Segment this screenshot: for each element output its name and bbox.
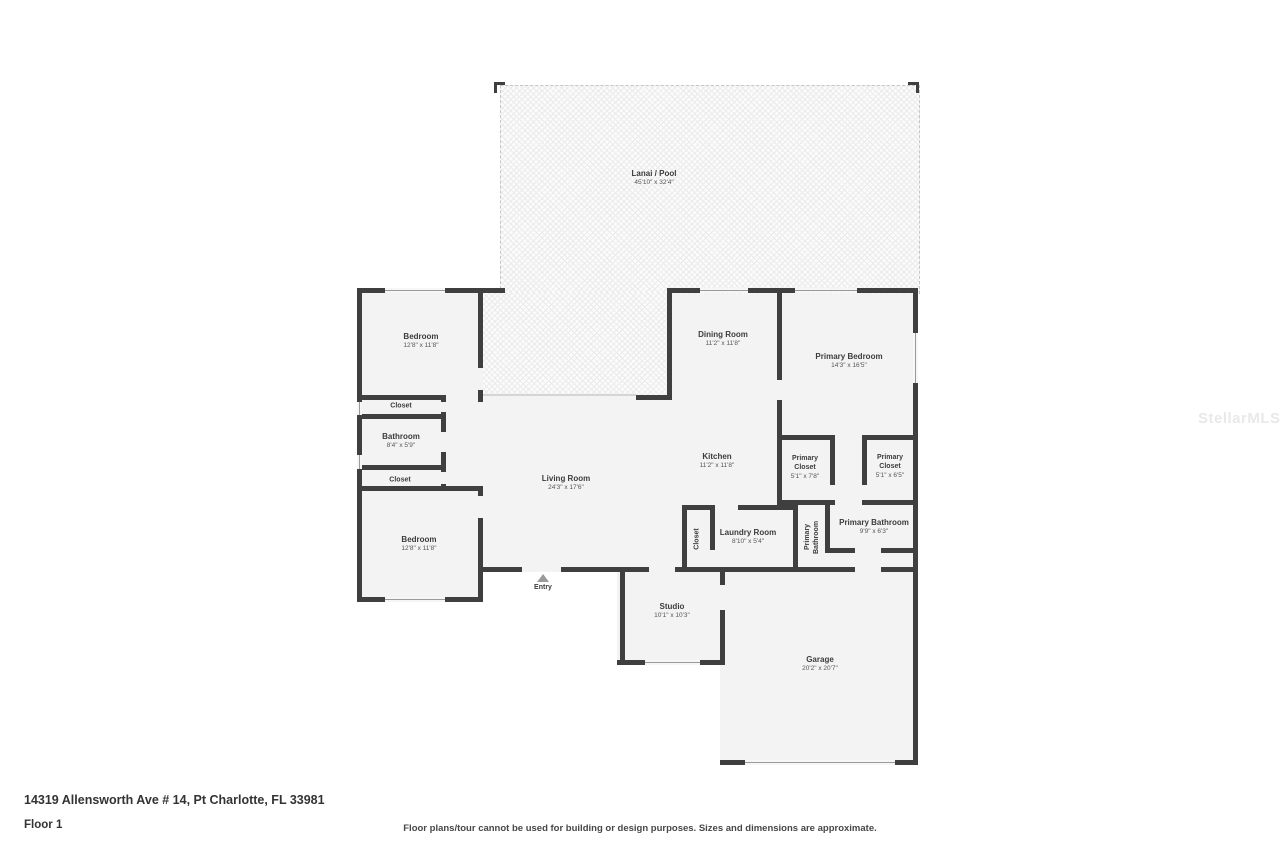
- wall: [357, 414, 446, 419]
- disclaimer-text: Floor plans/tour cannot be used for buil…: [0, 823, 1280, 834]
- wall: [777, 435, 835, 440]
- wall: [625, 567, 649, 572]
- room-name: Bathroom: [382, 432, 420, 442]
- window-marker: [385, 597, 445, 602]
- room-dims: 24'3" x 17'6": [542, 484, 590, 492]
- room-dims: 20'2" x 20'7": [802, 665, 838, 673]
- wall: [675, 567, 855, 572]
- room-dims: 14'3" x 16'5": [815, 362, 882, 370]
- room-name: Bedroom: [401, 535, 436, 545]
- room-name: Primary Bedroom: [815, 352, 882, 362]
- wall: [478, 486, 483, 496]
- room-label-studio: Studio 10'1" x 10'3": [654, 602, 690, 620]
- window-marker: [385, 288, 445, 293]
- wall: [620, 567, 625, 665]
- window-marker: [645, 660, 700, 665]
- window-marker: [795, 288, 857, 293]
- entry-arrow-icon: [537, 574, 549, 582]
- room-dims: 45'10" x 32'4": [632, 179, 677, 187]
- room-label-lanai-pool: Lanai / Pool 45'10" x 32'4": [632, 169, 677, 187]
- lanai-extension-area: [483, 293, 672, 395]
- room-name: Living Room: [542, 474, 590, 484]
- wall: [667, 288, 672, 400]
- room-name: Kitchen: [700, 452, 735, 462]
- wall: [710, 505, 715, 550]
- room-name: Laundry Room: [720, 528, 776, 538]
- room-dims: 9'9" x 6'3": [839, 528, 909, 536]
- wall: [441, 484, 446, 491]
- room-label-closet-2: Closet: [389, 477, 410, 486]
- wall: [478, 288, 483, 368]
- room-name: Closet: [389, 477, 410, 486]
- lanai-corner-tick: [916, 82, 919, 93]
- room-dims: 12'8" x 11'8": [401, 545, 436, 553]
- wall: [913, 288, 918, 570]
- room-dims: 11'2" x 11'8": [700, 462, 735, 470]
- wall: [862, 435, 918, 440]
- room-name: Bedroom: [403, 332, 438, 342]
- room-dims: 10'1" x 10'3": [654, 612, 690, 620]
- wall: [825, 505, 830, 550]
- room-label-living-room: Living Room 24'3" x 17'6": [542, 474, 590, 492]
- room-dims: 11'2" x 11'8": [698, 340, 748, 348]
- property-address: 14319 Allensworth Ave # 14, Pt Charlotte…: [24, 793, 325, 807]
- wall: [441, 395, 446, 402]
- room-label-closet-1: Closet: [390, 403, 411, 412]
- entry-marker: Entry: [534, 574, 552, 591]
- room-label-primary-bathroom: Primary Bathroom 9'9" x 6'3": [839, 518, 909, 536]
- wall: [357, 486, 483, 491]
- room-dims: 5'1" x 6'5": [868, 472, 912, 480]
- room-name: Garage: [802, 655, 838, 665]
- room-name: Studio: [654, 602, 690, 612]
- room-label-kitchen: Kitchen 11'2" x 11'8": [700, 452, 735, 470]
- lanai-corner-tick: [494, 82, 497, 93]
- room-label-primary-bathroom-vertical: Primary Bathroom: [803, 510, 821, 564]
- watermark: StellarMLS: [1198, 410, 1280, 427]
- room-dims: 5'1" x 7'8": [783, 473, 827, 481]
- wall: [738, 505, 795, 510]
- window-marker: [913, 333, 918, 383]
- room-label-closet-3: Closet: [692, 528, 701, 549]
- room-name: Dining Room: [698, 330, 748, 340]
- window-marker: [357, 402, 362, 415]
- room-dims: 8'10" x 5'4": [720, 538, 776, 546]
- room-label-primary-closet-left: Primary Closet 5'1" x 7'8": [783, 455, 827, 481]
- room-name: Primary Closet: [783, 455, 827, 473]
- room-name: Closet: [390, 403, 411, 412]
- room-label-bedroom-1: Bedroom 12'8" x 11'8": [403, 332, 438, 350]
- wall: [913, 570, 918, 765]
- wall: [483, 567, 522, 572]
- room-label-garage: Garage 20'2" x 20'7": [802, 655, 838, 673]
- wall: [357, 465, 446, 470]
- room-name: Primary Bathroom: [803, 510, 821, 564]
- room-name: Closet: [692, 528, 701, 549]
- wall: [777, 288, 782, 380]
- wall: [720, 567, 725, 585]
- room-dims: 12'8" x 11'8": [403, 342, 438, 350]
- floor-plan-page: Lanai / Pool 45'10" x 32'4" Bedroom 12'8…: [0, 0, 1280, 852]
- garage-door-marker: [745, 760, 895, 765]
- wall: [357, 395, 446, 400]
- wall: [561, 567, 625, 572]
- wall: [357, 288, 362, 602]
- window-marker: [700, 288, 748, 293]
- room-label-bedroom-2: Bedroom 12'8" x 11'8": [401, 535, 436, 553]
- wall: [682, 505, 687, 567]
- room-label-primary-bedroom: Primary Bedroom 14'3" x 16'5": [815, 352, 882, 370]
- window-marker: [357, 455, 362, 469]
- wall: [720, 610, 725, 665]
- wall: [478, 390, 483, 402]
- wall: [441, 452, 446, 472]
- room-label-laundry-room: Laundry Room 8'10" x 5'4": [720, 528, 776, 546]
- wall: [478, 518, 483, 602]
- wall: [793, 505, 798, 567]
- room-name: Lanai / Pool: [632, 169, 677, 179]
- lanai-opening-line: [483, 394, 636, 396]
- room-dims: 8'4" x 5'9": [382, 442, 420, 450]
- entry-label: Entry: [534, 584, 552, 591]
- room-label-bathroom: Bathroom 8'4" x 5'9": [382, 432, 420, 450]
- room-name: Primary Bathroom: [839, 518, 909, 528]
- wall: [862, 435, 867, 485]
- room-label-dining-room: Dining Room 11'2" x 11'8": [698, 330, 748, 348]
- wall: [441, 412, 446, 432]
- room-label-primary-closet-right: Primary Closet 5'1" x 6'5": [868, 454, 912, 480]
- room-name: Primary Closet: [868, 454, 912, 472]
- wall: [830, 435, 835, 485]
- wall: [862, 500, 918, 505]
- wall: [777, 400, 782, 505]
- lanai-area: [500, 85, 920, 294]
